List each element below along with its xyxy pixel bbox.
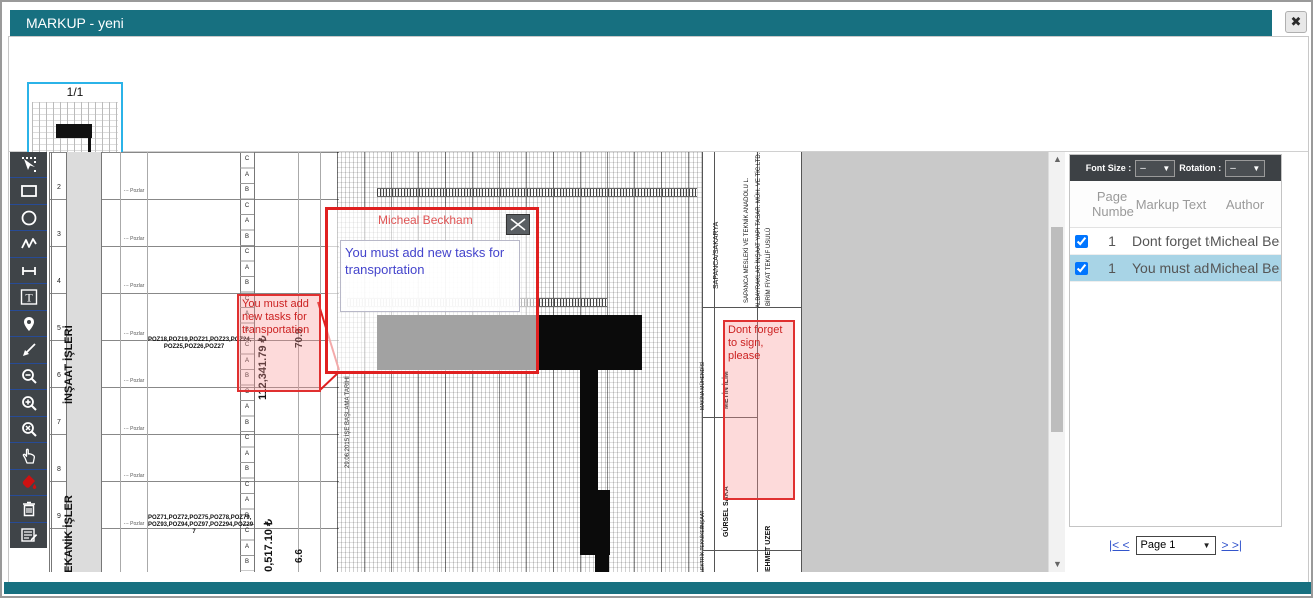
- section-label-insaat: İNŞAAT İŞLERİ: [63, 325, 75, 404]
- scroll-down-arrow[interactable]: ▼: [1049, 557, 1065, 572]
- gantt-bar-block: [580, 490, 610, 555]
- document-viewport[interactable]: 2 3 4 5 6 7 8 9 -·- Pozlar -·- Pozlar -·…: [47, 152, 1065, 572]
- pager: |< < Page 1 ▼ > >|: [1069, 534, 1282, 556]
- hand-icon: [20, 447, 38, 465]
- sig-location: SAPANCA/SAKARYA: [713, 222, 720, 289]
- chevron-down-icon: ▼: [1252, 164, 1260, 173]
- header-markup-text: Markup Text: [1132, 197, 1210, 212]
- text-icon: T: [20, 288, 38, 306]
- page-select-value: Page 1: [1141, 539, 1176, 551]
- close-window-button[interactable]: ✖: [1285, 11, 1307, 33]
- zoom-reset-tool-button[interactable]: [10, 417, 47, 443]
- sig-border: [702, 307, 802, 308]
- canvas-background: [802, 152, 1048, 572]
- sig-name-3: MEHMET UZER: [765, 526, 772, 572]
- popup-close-button[interactable]: [506, 214, 530, 235]
- section-label-mekanik: MEKANİK İŞLER: [63, 495, 75, 572]
- rotation-select[interactable]: – ▼: [1225, 160, 1265, 177]
- row-checkbox[interactable]: [1075, 262, 1088, 275]
- line-icon: [20, 262, 38, 280]
- first-page-link[interactable]: |< <: [1109, 538, 1129, 552]
- font-size-label: Font Size :: [1086, 163, 1132, 173]
- row-author: Micheal Beckh: [1210, 233, 1280, 249]
- thumb-bar: [56, 124, 92, 138]
- markup-row[interactable]: 1 Dont forget to Micheal Beckh: [1070, 228, 1281, 255]
- markup-note-right-text: Dont forget to sign, please: [728, 324, 782, 362]
- svg-text:T: T: [25, 291, 33, 305]
- scrollbar-thumb[interactable]: [1051, 227, 1063, 432]
- pan-tool-button[interactable]: [10, 443, 47, 469]
- zoom-out-icon: [20, 367, 38, 385]
- sig-contractor: ALBAYRAKLAR İNŞAAT YAPI TASAR. MÜH. VE T…: [756, 152, 762, 308]
- markup-note-right[interactable]: Dont forget to sign, please: [723, 320, 795, 500]
- row-page: 1: [1092, 233, 1132, 249]
- ellipse-icon: [20, 209, 38, 227]
- markup-list-icon: [20, 526, 38, 544]
- polyline-tool-button[interactable]: [10, 231, 47, 257]
- page-select[interactable]: Page 1 ▼: [1136, 536, 1216, 555]
- arrow-tool-button[interactable]: [10, 337, 47, 363]
- zoom-in-icon: [20, 394, 38, 412]
- line-tool-button[interactable]: [10, 258, 47, 284]
- bottom-bar: [4, 582, 1313, 594]
- rotation-value: –: [1230, 163, 1236, 174]
- polyline-icon: [20, 235, 38, 253]
- row-page: 1: [1092, 260, 1132, 276]
- zoom-in-tool-button[interactable]: [10, 390, 47, 416]
- markup-panel: Font Size : – ▼ Rotation : – ▼ Page Numb…: [1069, 154, 1282, 527]
- row-author: Micheal Beckh: [1210, 260, 1280, 276]
- vertical-scrollbar[interactable]: ▲ ▼: [1048, 152, 1065, 572]
- color-fill-icon: [20, 473, 38, 491]
- row-text: You must add: [1132, 260, 1210, 276]
- popup-author: Micheal Beckham: [378, 213, 473, 227]
- pin-tool-button[interactable]: [10, 311, 47, 337]
- popup-text-input[interactable]: You must add new tasks for transportatio…: [340, 240, 520, 312]
- color-fill-tool-button[interactable]: [10, 470, 47, 496]
- date-tick-row: [377, 188, 697, 197]
- ellipse-tool-button[interactable]: [10, 205, 47, 231]
- sig-school: SAPANCA MESLEKİ VE TEKNİK ANADOLU L.: [744, 178, 750, 304]
- pozlar-column: -·- Pozlar -·- Pozlar -·- Pozlar -·- Poz…: [120, 168, 148, 548]
- thumbnail-strip: 1/1: [9, 37, 1308, 152]
- close-icon: ✖: [1291, 14, 1302, 29]
- markup-note-left[interactable]: You must add new tasks for transportatio…: [237, 294, 321, 392]
- rectangle-tool-button[interactable]: [10, 178, 47, 204]
- header-page-number: Page Numbe: [1092, 189, 1132, 219]
- trash-icon: [20, 500, 38, 518]
- thumbnail-page-label: 1/1: [29, 85, 121, 99]
- text-tool-button[interactable]: T: [10, 284, 47, 310]
- rectangle-icon: [20, 182, 38, 200]
- delete-tool-button[interactable]: [10, 496, 47, 522]
- markup-list-tool-button[interactable]: [10, 523, 47, 548]
- sig-border: [714, 152, 715, 572]
- popup-close-icon: [507, 218, 529, 231]
- sig-role-1: MAKİNA MÜHENDİSİ: [700, 362, 706, 410]
- percent-2: 6.6: [294, 549, 305, 563]
- font-size-value: –: [1140, 163, 1146, 174]
- rotation-label: Rotation :: [1179, 163, 1221, 173]
- table-border: [49, 152, 50, 572]
- schedule-page: 2 3 4 5 6 7 8 9 -·- Pozlar -·- Pozlar -·…: [47, 152, 802, 572]
- markup-table: Page Numbe Markup Text Author 1 Dont for…: [1070, 181, 1281, 282]
- panel-toolbar: Font Size : – ▼ Rotation : – ▼: [1070, 155, 1281, 181]
- chevron-down-icon: ▼: [1162, 164, 1170, 173]
- amount-2: 10,517.10 ₺: [262, 519, 275, 572]
- window-title: MARKUP - yeni: [26, 15, 124, 31]
- markup-table-header: Page Numbe Markup Text Author: [1070, 181, 1281, 228]
- header-author: Author: [1210, 197, 1280, 212]
- chevron-down-icon: ▼: [1203, 541, 1211, 550]
- sig-method: BİRİM FİYAT TEKLİF USULÜ: [766, 228, 772, 306]
- title-bar: MARKUP - yeni: [10, 10, 1272, 36]
- markup-note-left-text: You must add new tasks for transportatio…: [242, 298, 309, 336]
- row-text: Dont forget to: [1132, 233, 1210, 249]
- zoom-reset-icon: [20, 420, 38, 438]
- markup-toolbar: T: [10, 152, 47, 548]
- gantt-bar-tail: [595, 555, 609, 572]
- markup-row-selected[interactable]: 1 You must add Micheal Beckh: [1070, 255, 1281, 282]
- sig-role-3: ELEKTRİK TEKNİKER: [700, 526, 706, 572]
- row-checkbox[interactable]: [1075, 235, 1088, 248]
- pin-icon: [20, 315, 38, 333]
- markup-editor-popup[interactable]: Micheal Beckham You must add new tasks f…: [325, 207, 539, 374]
- select-tool-button[interactable]: [10, 152, 47, 178]
- last-page-link[interactable]: > >|: [1222, 538, 1242, 552]
- poz-description-1: POZ18,POZ19,POZ21,POZ23,POZ24, POZ25,POZ…: [148, 337, 240, 351]
- gantt-start-label: 29.06.2015 İŞE BAŞLAMA TARİHİ: [345, 376, 351, 468]
- arrow-icon: [20, 341, 38, 359]
- zoom-out-tool-button[interactable]: [10, 364, 47, 390]
- gantt-bar-stem: [580, 370, 598, 490]
- poz-description-2: POZ71,POZ72,POZ75,POZ78,POZ79, POZ93,POZ…: [148, 515, 240, 536]
- sig-border: [702, 550, 802, 551]
- select-icon: [20, 156, 38, 174]
- markup-window: MARKUP - yeni ✖ 1/1 T: [0, 0, 1313, 598]
- scroll-up-arrow[interactable]: ▲: [1049, 152, 1065, 167]
- font-size-select[interactable]: – ▼: [1135, 160, 1175, 177]
